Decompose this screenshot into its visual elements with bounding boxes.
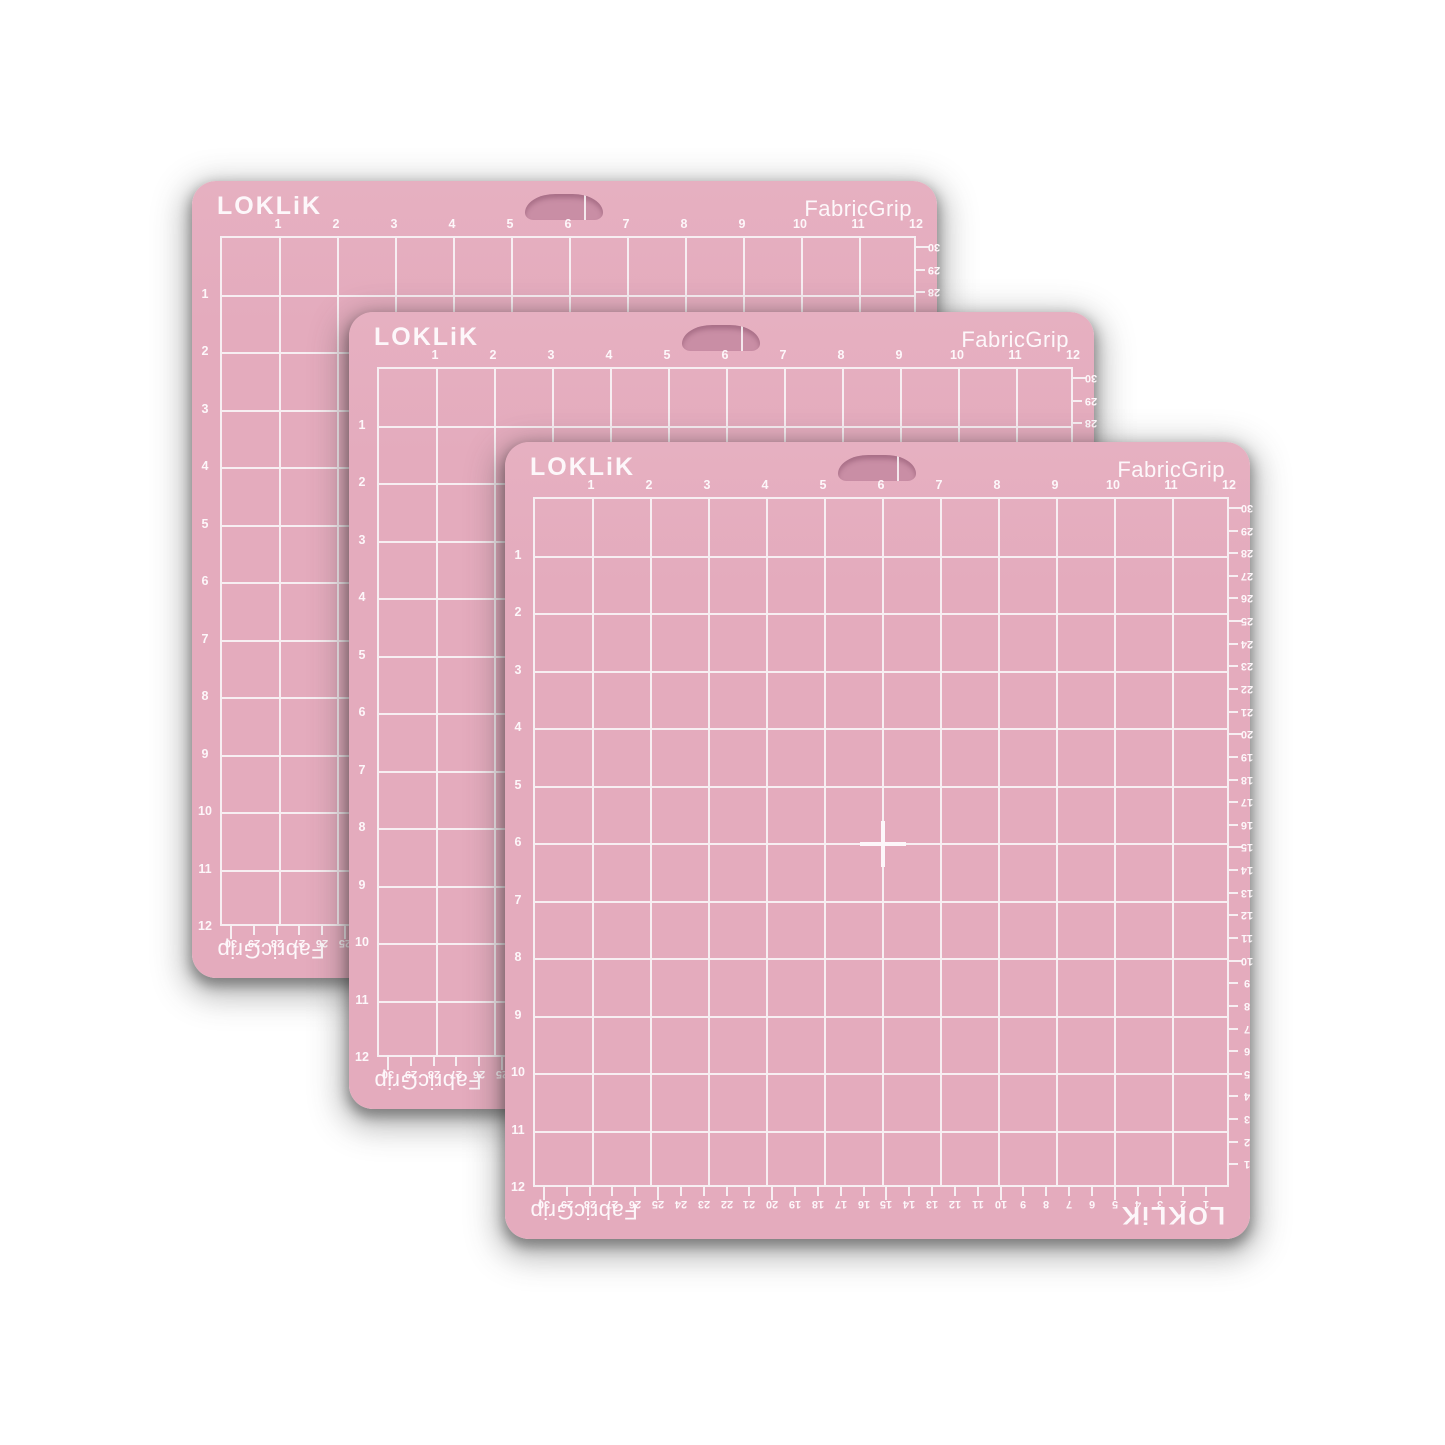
inch-label-left: 4 bbox=[193, 460, 217, 473]
grid-vline bbox=[337, 238, 339, 924]
cm-tick-bottom bbox=[931, 1187, 933, 1196]
front-mat: LOKLiKFabricGrip123456789101112123456789… bbox=[505, 442, 1250, 1239]
cm-tick-bottom bbox=[748, 1187, 750, 1196]
inch-label-left: 3 bbox=[193, 402, 217, 415]
cm-tick-bottom bbox=[1022, 1187, 1024, 1196]
inch-label-left: 11 bbox=[350, 993, 374, 1006]
inch-label-top: 3 bbox=[539, 349, 563, 362]
cm-label-bottom: 14 bbox=[899, 1198, 919, 1209]
hanger-notch-hole bbox=[682, 325, 760, 351]
grid-vline bbox=[436, 369, 438, 1055]
inch-label-top: 7 bbox=[614, 218, 638, 231]
cm-label-right: 30 bbox=[1081, 372, 1101, 383]
cm-label-right: 28 bbox=[1237, 547, 1257, 558]
bottom-product-name: FabricGrip bbox=[530, 1200, 638, 1222]
cm-tick-bottom bbox=[410, 1057, 412, 1066]
inch-label-left: 3 bbox=[506, 663, 530, 676]
inch-label-top: 6 bbox=[713, 349, 737, 362]
cm-label-right: 19 bbox=[1237, 751, 1257, 762]
inch-label-top: 5 bbox=[655, 349, 679, 362]
grid-vline bbox=[1172, 499, 1174, 1185]
cm-label-right: 12 bbox=[1237, 909, 1257, 920]
cm-label-right: 28 bbox=[1081, 417, 1101, 428]
cm-tick-bottom bbox=[1182, 1187, 1184, 1196]
grid-vline bbox=[998, 499, 1000, 1185]
inch-label-top: 2 bbox=[637, 479, 661, 492]
cm-label-bottom: 17 bbox=[831, 1198, 851, 1209]
cm-tick-bottom bbox=[1159, 1187, 1161, 1196]
cm-label-right: 30 bbox=[1237, 502, 1257, 513]
cm-label-right: 30 bbox=[924, 241, 944, 252]
scene: LOKLiKFabricGrip123456789101112123456789… bbox=[0, 0, 1445, 1445]
cm-tick-bottom bbox=[726, 1187, 728, 1196]
inch-label-left: 9 bbox=[350, 878, 374, 891]
cm-tick-bottom bbox=[1091, 1187, 1093, 1196]
grid-line-through-hole bbox=[897, 455, 899, 481]
cm-label-bottom: 15 bbox=[876, 1198, 896, 1209]
inch-label-left: 1 bbox=[193, 287, 217, 300]
cm-label-right: 29 bbox=[1237, 525, 1257, 536]
inch-label-top: 10 bbox=[788, 218, 812, 231]
cm-tick-bottom bbox=[478, 1057, 480, 1066]
cm-label-right: 29 bbox=[1081, 395, 1101, 406]
grid-vline bbox=[940, 499, 942, 1185]
cm-tick-bottom bbox=[863, 1187, 865, 1196]
grid-vline bbox=[766, 499, 768, 1185]
inch-label-top: 7 bbox=[771, 349, 795, 362]
cm-tick-bottom bbox=[840, 1187, 842, 1196]
cm-label-bottom: 20 bbox=[762, 1198, 782, 1209]
inch-label-left: 10 bbox=[506, 1066, 530, 1079]
inch-label-top: 4 bbox=[597, 349, 621, 362]
grid-vline bbox=[1056, 499, 1058, 1185]
inch-label-top: 12 bbox=[1217, 479, 1241, 492]
grid-hline bbox=[535, 728, 1227, 730]
inch-label-top: 9 bbox=[887, 349, 911, 362]
cm-label-right: 1 bbox=[1237, 1158, 1257, 1169]
inch-label-left: 12 bbox=[350, 1051, 374, 1064]
grid-line-through-hole bbox=[741, 325, 743, 351]
inch-label-left: 10 bbox=[193, 805, 217, 818]
cm-tick-bottom bbox=[817, 1187, 819, 1196]
grid-hline bbox=[535, 1073, 1227, 1075]
cm-label-bottom: 18 bbox=[808, 1198, 828, 1209]
cm-label-bottom: 19 bbox=[785, 1198, 805, 1209]
cm-label-right: 18 bbox=[1237, 774, 1257, 785]
bottom-product-name: FabricGrip bbox=[374, 1070, 482, 1092]
cm-label-bottom: 13 bbox=[922, 1198, 942, 1209]
inch-label-top: 3 bbox=[382, 218, 406, 231]
cm-tick-bottom bbox=[1205, 1187, 1207, 1196]
inch-label-left: 9 bbox=[506, 1008, 530, 1021]
cm-tick-bottom bbox=[794, 1187, 796, 1196]
cm-tick-bottom bbox=[680, 1187, 682, 1196]
brand-logo: LOKLiK bbox=[217, 194, 322, 219]
cm-label-right: 2 bbox=[1237, 1136, 1257, 1147]
grid-vline bbox=[708, 499, 710, 1185]
inch-label-left: 8 bbox=[193, 690, 217, 703]
cm-label-right: 4 bbox=[1237, 1090, 1257, 1101]
inch-label-top: 10 bbox=[1101, 479, 1125, 492]
inch-label-left: 5 bbox=[506, 778, 530, 791]
cm-tick-bottom bbox=[1068, 1187, 1070, 1196]
inch-label-top: 1 bbox=[579, 479, 603, 492]
grid-vline bbox=[494, 369, 496, 1055]
grid-vline bbox=[650, 499, 652, 1185]
cm-label-right: 16 bbox=[1237, 819, 1257, 830]
cm-label-right: 26 bbox=[1237, 592, 1257, 603]
inch-label-left: 3 bbox=[350, 533, 374, 546]
grid-hline bbox=[535, 1016, 1227, 1018]
inch-label-top: 8 bbox=[672, 218, 696, 231]
inch-label-top: 9 bbox=[730, 218, 754, 231]
inch-label-top: 6 bbox=[556, 218, 580, 231]
cm-tick-bottom bbox=[703, 1187, 705, 1196]
cm-label-right: 28 bbox=[924, 286, 944, 297]
cm-label-right: 3 bbox=[1237, 1113, 1257, 1124]
cm-tick-bottom bbox=[433, 1057, 435, 1066]
cm-label-right: 11 bbox=[1237, 932, 1257, 943]
inch-label-top: 11 bbox=[846, 218, 870, 231]
cm-label-right: 20 bbox=[1237, 728, 1257, 739]
inch-label-top: 11 bbox=[1159, 479, 1183, 492]
cm-label-bottom: 8 bbox=[1036, 1198, 1056, 1209]
inch-label-top: 8 bbox=[829, 349, 853, 362]
cm-tick-bottom bbox=[455, 1057, 457, 1066]
cm-label-bottom: 21 bbox=[739, 1198, 759, 1209]
cm-label-bottom: 6 bbox=[1082, 1198, 1102, 1209]
inch-label-top: 12 bbox=[904, 218, 928, 231]
grid-hline bbox=[535, 1131, 1227, 1133]
cutting-grid bbox=[533, 497, 1229, 1187]
inch-label-left: 4 bbox=[506, 721, 530, 734]
grid-hline bbox=[535, 958, 1227, 960]
cm-label-bottom: 24 bbox=[671, 1198, 691, 1209]
cm-label-bottom: 9 bbox=[1013, 1198, 1033, 1209]
cm-label-right: 23 bbox=[1237, 660, 1257, 671]
cm-label-bottom: 23 bbox=[694, 1198, 714, 1209]
inch-label-top: 1 bbox=[423, 349, 447, 362]
grid-hline bbox=[535, 901, 1227, 903]
cm-label-right: 27 bbox=[1237, 570, 1257, 581]
center-cross bbox=[881, 821, 885, 867]
grid-hline bbox=[379, 426, 1071, 428]
cm-label-bottom: 11 bbox=[968, 1198, 988, 1209]
inch-label-left: 11 bbox=[193, 862, 217, 875]
inch-label-left: 5 bbox=[350, 648, 374, 661]
inch-label-left: 10 bbox=[350, 936, 374, 949]
cm-label-bottom: 22 bbox=[717, 1198, 737, 1209]
cm-label-right: 8 bbox=[1237, 1000, 1257, 1011]
inch-label-top: 9 bbox=[1043, 479, 1067, 492]
grid-hline bbox=[222, 295, 914, 297]
cm-tick-bottom bbox=[908, 1187, 910, 1196]
inch-label-left: 6 bbox=[350, 706, 374, 719]
cm-label-right: 5 bbox=[1237, 1068, 1257, 1079]
grid-line-through-hole bbox=[584, 194, 586, 220]
cm-label-right: 22 bbox=[1237, 683, 1257, 694]
cm-label-bottom: 7 bbox=[1059, 1198, 1079, 1209]
grid-vline bbox=[1114, 499, 1116, 1185]
inch-label-top: 7 bbox=[927, 479, 951, 492]
inch-label-left: 1 bbox=[350, 418, 374, 431]
cm-label-bottom: 10 bbox=[991, 1198, 1011, 1209]
grid-hline bbox=[535, 556, 1227, 558]
inch-label-top: 6 bbox=[869, 479, 893, 492]
cm-label-right: 15 bbox=[1237, 841, 1257, 852]
brand-logo: LOKLiK bbox=[530, 455, 635, 480]
inch-label-left: 8 bbox=[506, 951, 530, 964]
inch-label-top: 1 bbox=[266, 218, 290, 231]
inch-label-left: 11 bbox=[506, 1123, 530, 1136]
cm-tick-bottom bbox=[1137, 1187, 1139, 1196]
inch-label-top: 11 bbox=[1003, 349, 1027, 362]
inch-label-top: 5 bbox=[811, 479, 835, 492]
cm-label-right: 17 bbox=[1237, 796, 1257, 807]
cm-tick-bottom bbox=[954, 1187, 956, 1196]
inch-label-left: 7 bbox=[506, 893, 530, 906]
cm-label-right: 29 bbox=[924, 264, 944, 275]
cm-tick-bottom bbox=[589, 1187, 591, 1196]
cm-label-right: 13 bbox=[1237, 887, 1257, 898]
inch-label-top: 10 bbox=[945, 349, 969, 362]
cm-tick-bottom bbox=[611, 1187, 613, 1196]
brand-logo: LOKLiK bbox=[374, 325, 479, 350]
cm-tick-bottom bbox=[566, 1187, 568, 1196]
inch-label-top: 3 bbox=[695, 479, 719, 492]
grid-vline bbox=[824, 499, 826, 1185]
grid-hline bbox=[535, 671, 1227, 673]
cm-label-right: 9 bbox=[1237, 977, 1257, 988]
cm-label-right: 24 bbox=[1237, 638, 1257, 649]
grid-vline bbox=[592, 499, 594, 1185]
cm-tick-bottom bbox=[276, 926, 278, 935]
inch-label-left: 2 bbox=[350, 476, 374, 489]
grid-hline bbox=[535, 613, 1227, 615]
cm-label-right: 14 bbox=[1237, 864, 1257, 875]
cm-tick-bottom bbox=[634, 1187, 636, 1196]
cm-tick-bottom bbox=[1045, 1187, 1047, 1196]
hanger-notch-hole bbox=[525, 194, 603, 220]
grid-hline bbox=[535, 786, 1227, 788]
inch-label-top: 4 bbox=[753, 479, 777, 492]
cm-tick-bottom bbox=[298, 926, 300, 935]
hanger-notch-hole bbox=[838, 455, 916, 481]
cm-label-right: 7 bbox=[1237, 1023, 1257, 1034]
inch-label-left: 6 bbox=[193, 575, 217, 588]
inch-label-top: 4 bbox=[440, 218, 464, 231]
inch-label-left: 1 bbox=[506, 548, 530, 561]
inch-label-left: 5 bbox=[193, 517, 217, 530]
inch-label-left: 7 bbox=[350, 763, 374, 776]
cm-tick-bottom bbox=[977, 1187, 979, 1196]
cm-label-right: 10 bbox=[1237, 955, 1257, 966]
inch-label-left: 2 bbox=[506, 606, 530, 619]
inch-label-left: 8 bbox=[350, 821, 374, 834]
inch-label-left: 12 bbox=[193, 920, 217, 933]
inch-label-left: 2 bbox=[193, 345, 217, 358]
inch-label-top: 2 bbox=[481, 349, 505, 362]
grid-vline bbox=[279, 238, 281, 924]
inch-label-left: 7 bbox=[193, 632, 217, 645]
cm-label-bottom: 25 bbox=[648, 1198, 668, 1209]
bottom-product-name: FabricGrip bbox=[217, 939, 325, 961]
inch-label-left: 4 bbox=[350, 591, 374, 604]
cm-label-right: 21 bbox=[1237, 706, 1257, 717]
inch-label-top: 12 bbox=[1061, 349, 1085, 362]
cm-label-right: 25 bbox=[1237, 615, 1257, 626]
bottom-brand-logo: LOKLiK bbox=[1120, 1202, 1225, 1227]
cm-label-bottom: 16 bbox=[854, 1198, 874, 1209]
cm-tick-bottom bbox=[253, 926, 255, 935]
inch-label-left: 9 bbox=[193, 747, 217, 760]
inch-label-left: 6 bbox=[506, 836, 530, 849]
inch-label-top: 2 bbox=[324, 218, 348, 231]
inch-label-top: 5 bbox=[498, 218, 522, 231]
inch-label-top: 8 bbox=[985, 479, 1009, 492]
cm-label-right: 6 bbox=[1237, 1045, 1257, 1056]
cm-tick-bottom bbox=[321, 926, 323, 935]
inch-label-left: 12 bbox=[506, 1181, 530, 1194]
cm-label-bottom: 12 bbox=[945, 1198, 965, 1209]
